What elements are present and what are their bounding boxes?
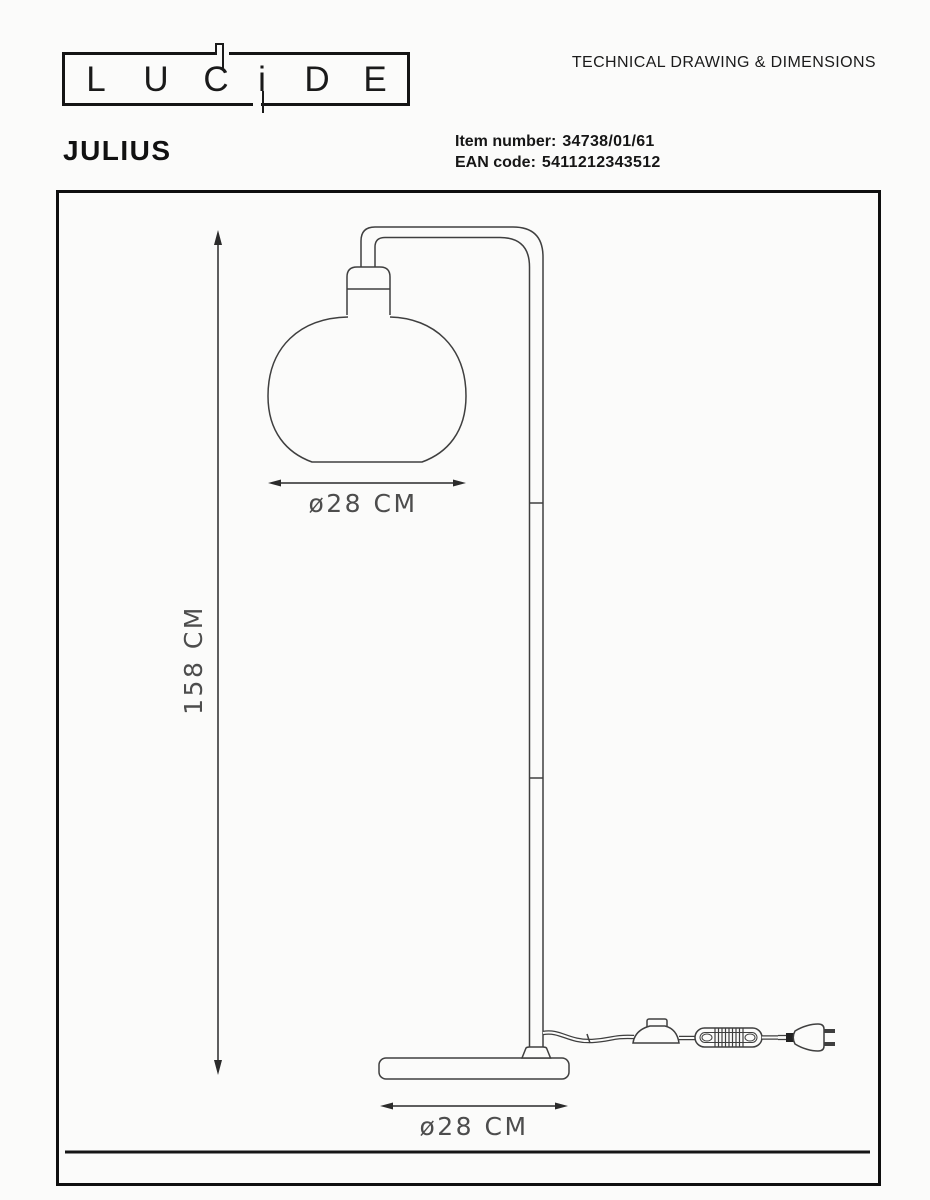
lamp-socket xyxy=(347,267,390,315)
logo-letter: D xyxy=(304,55,329,103)
ean-code-label: EAN code: xyxy=(455,154,536,171)
product-name: JULIUS xyxy=(63,135,172,167)
ean-code-value: 5411212343512 xyxy=(542,154,661,171)
power-cord xyxy=(543,1033,634,1043)
cable-coil xyxy=(695,1028,762,1047)
lamp-shade xyxy=(268,317,466,462)
height-dimension-label: 158 CM xyxy=(179,605,208,715)
item-number-label: Item number: xyxy=(455,133,556,150)
document-title: TECHNICAL DRAWING & DIMENSIONS xyxy=(572,54,876,72)
lamp-base xyxy=(379,1058,569,1079)
plug-pin xyxy=(824,1042,835,1046)
lamp-arm-and-pole xyxy=(361,227,543,1047)
product-codes: Item number:34738/01/61 EAN code:5411212… xyxy=(455,131,661,173)
base-diameter-label: ø28 CM xyxy=(419,1112,528,1141)
plug-pin xyxy=(824,1029,835,1033)
logo-letter: C xyxy=(203,55,228,103)
item-number-value: 34738/01/61 xyxy=(562,133,654,150)
lamp-technical-drawing: 158 CM ø28 CM xyxy=(56,190,881,1186)
foot-switch xyxy=(633,1019,679,1043)
height-dimension: 158 CM xyxy=(179,230,222,1075)
shade-diameter-dimension: ø28 CM xyxy=(268,480,466,519)
logo-letter: U xyxy=(143,55,168,103)
logo-letter: E xyxy=(363,55,386,103)
shade-diameter-label: ø28 CM xyxy=(308,489,417,518)
lucide-logo: L U C i D E xyxy=(62,52,410,106)
ean-code-row: EAN code:5411212343512 xyxy=(455,152,661,173)
base-diameter-dimension: ø28 CM xyxy=(380,1103,568,1142)
power-plug xyxy=(778,1024,835,1051)
pole-foot xyxy=(522,1047,551,1058)
logo-border-gap-bottom xyxy=(253,103,261,106)
logo-i-stem xyxy=(262,91,264,113)
item-number-row: Item number:34738/01/61 xyxy=(455,131,661,152)
technical-drawing-page: L U C i D E TECHNICAL DRAWING & DIMENSIO… xyxy=(0,0,930,1200)
logo-hook-icon xyxy=(222,43,224,70)
logo-letter: L xyxy=(86,55,105,103)
